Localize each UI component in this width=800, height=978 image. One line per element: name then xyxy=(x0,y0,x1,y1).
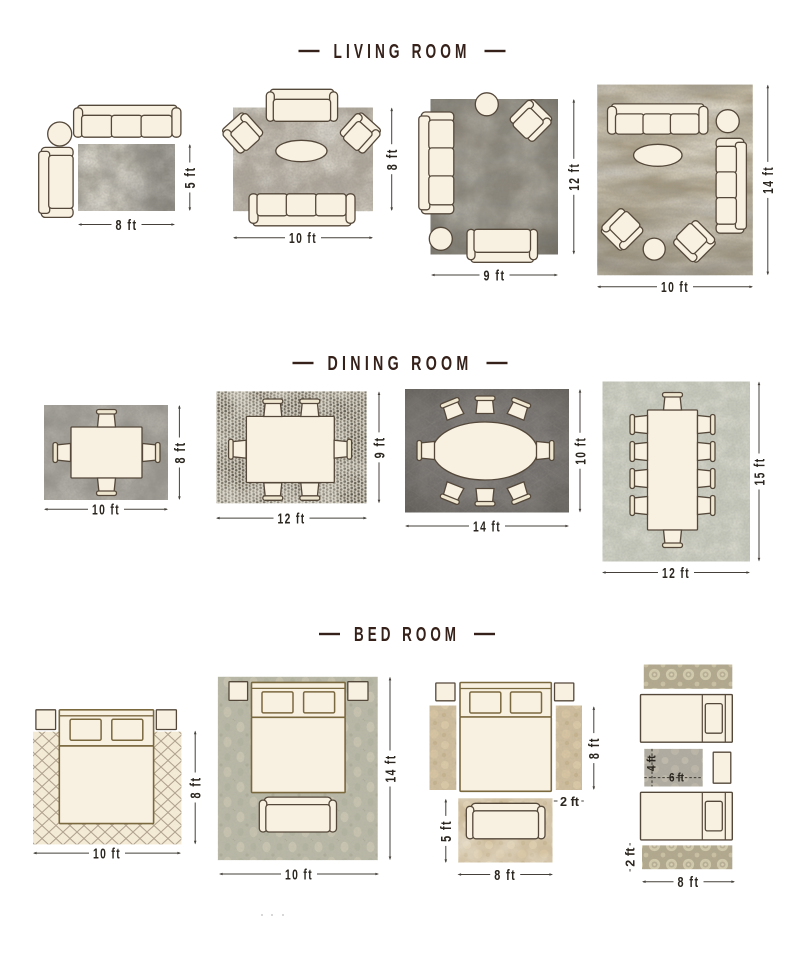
svg-text:5 ft: 5 ft xyxy=(182,167,199,189)
svg-text:10 ft: 10 ft xyxy=(93,846,121,863)
svg-text:10 ft: 10 ft xyxy=(285,866,313,883)
svg-text:8 ft: 8 ft xyxy=(678,874,700,891)
svg-text:15 ft: 15 ft xyxy=(751,458,768,486)
svg-text:12 ft: 12 ft xyxy=(278,511,306,528)
svg-text:10 ft: 10 ft xyxy=(92,502,120,519)
svg-text:10 ft: 10 ft xyxy=(289,230,317,247)
svg-text:8 ft: 8 ft xyxy=(172,442,189,464)
svg-text:6 ft: 6 ft xyxy=(669,771,684,785)
svg-text:14 ft: 14 ft xyxy=(382,755,399,783)
svg-text:8 ft: 8 ft xyxy=(116,217,138,234)
svg-text:BED ROOM: BED ROOM xyxy=(354,624,460,646)
svg-text:8 ft: 8 ft xyxy=(384,148,401,170)
svg-text:DINING ROOM: DINING ROOM xyxy=(328,353,473,375)
svg-text:14 ft: 14 ft xyxy=(760,166,777,194)
svg-text:2 ft: 2 ft xyxy=(622,847,637,867)
svg-text:5 ft: 5 ft xyxy=(438,820,455,842)
svg-text:9 ft: 9 ft xyxy=(371,436,388,458)
svg-text:8 ft: 8 ft xyxy=(188,777,205,799)
svg-text:12 ft: 12 ft xyxy=(566,163,583,191)
svg-text:9 ft: 9 ft xyxy=(484,267,506,284)
svg-text:14 ft: 14 ft xyxy=(473,518,501,535)
svg-text:LIVING ROOM: LIVING ROOM xyxy=(334,41,471,63)
svg-text:10 ft: 10 ft xyxy=(661,279,689,296)
svg-text:8 ft: 8 ft xyxy=(586,737,603,759)
svg-text:10 ft: 10 ft xyxy=(572,437,589,465)
svg-text:4 ft: 4 ft xyxy=(645,755,659,771)
svg-text:8 ft: 8 ft xyxy=(494,867,516,884)
svg-text:12 ft: 12 ft xyxy=(662,565,690,582)
svg-text:2 ft: 2 ft xyxy=(560,794,580,809)
